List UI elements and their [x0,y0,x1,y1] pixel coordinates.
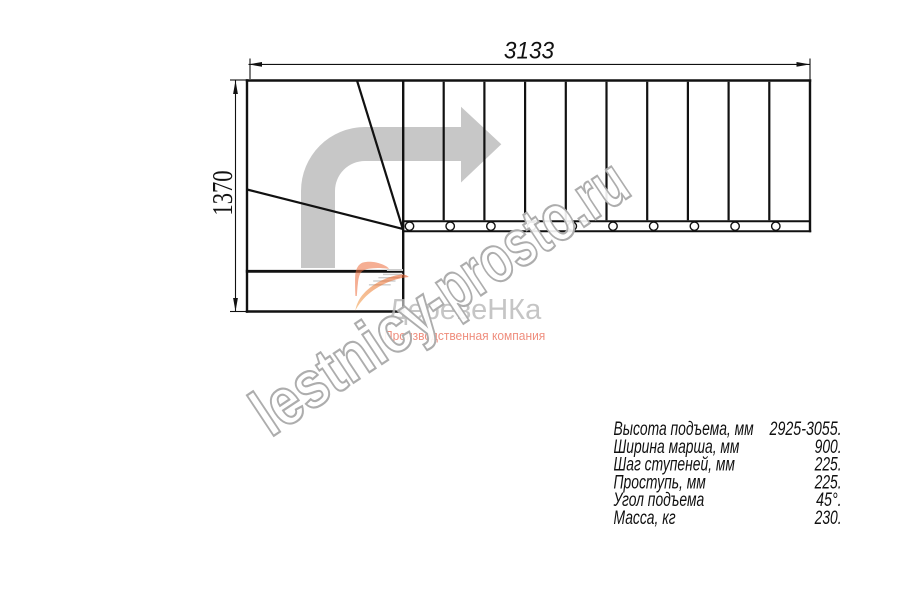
svg-text:230.: 230. [814,507,842,529]
svg-text:1370: 1370 [206,170,238,215]
svg-text:lestnicy: lestnicy [237,274,451,451]
svg-text:3133: 3133 [504,37,554,64]
svg-text:Масса, кг: Масса, кг [614,507,676,529]
